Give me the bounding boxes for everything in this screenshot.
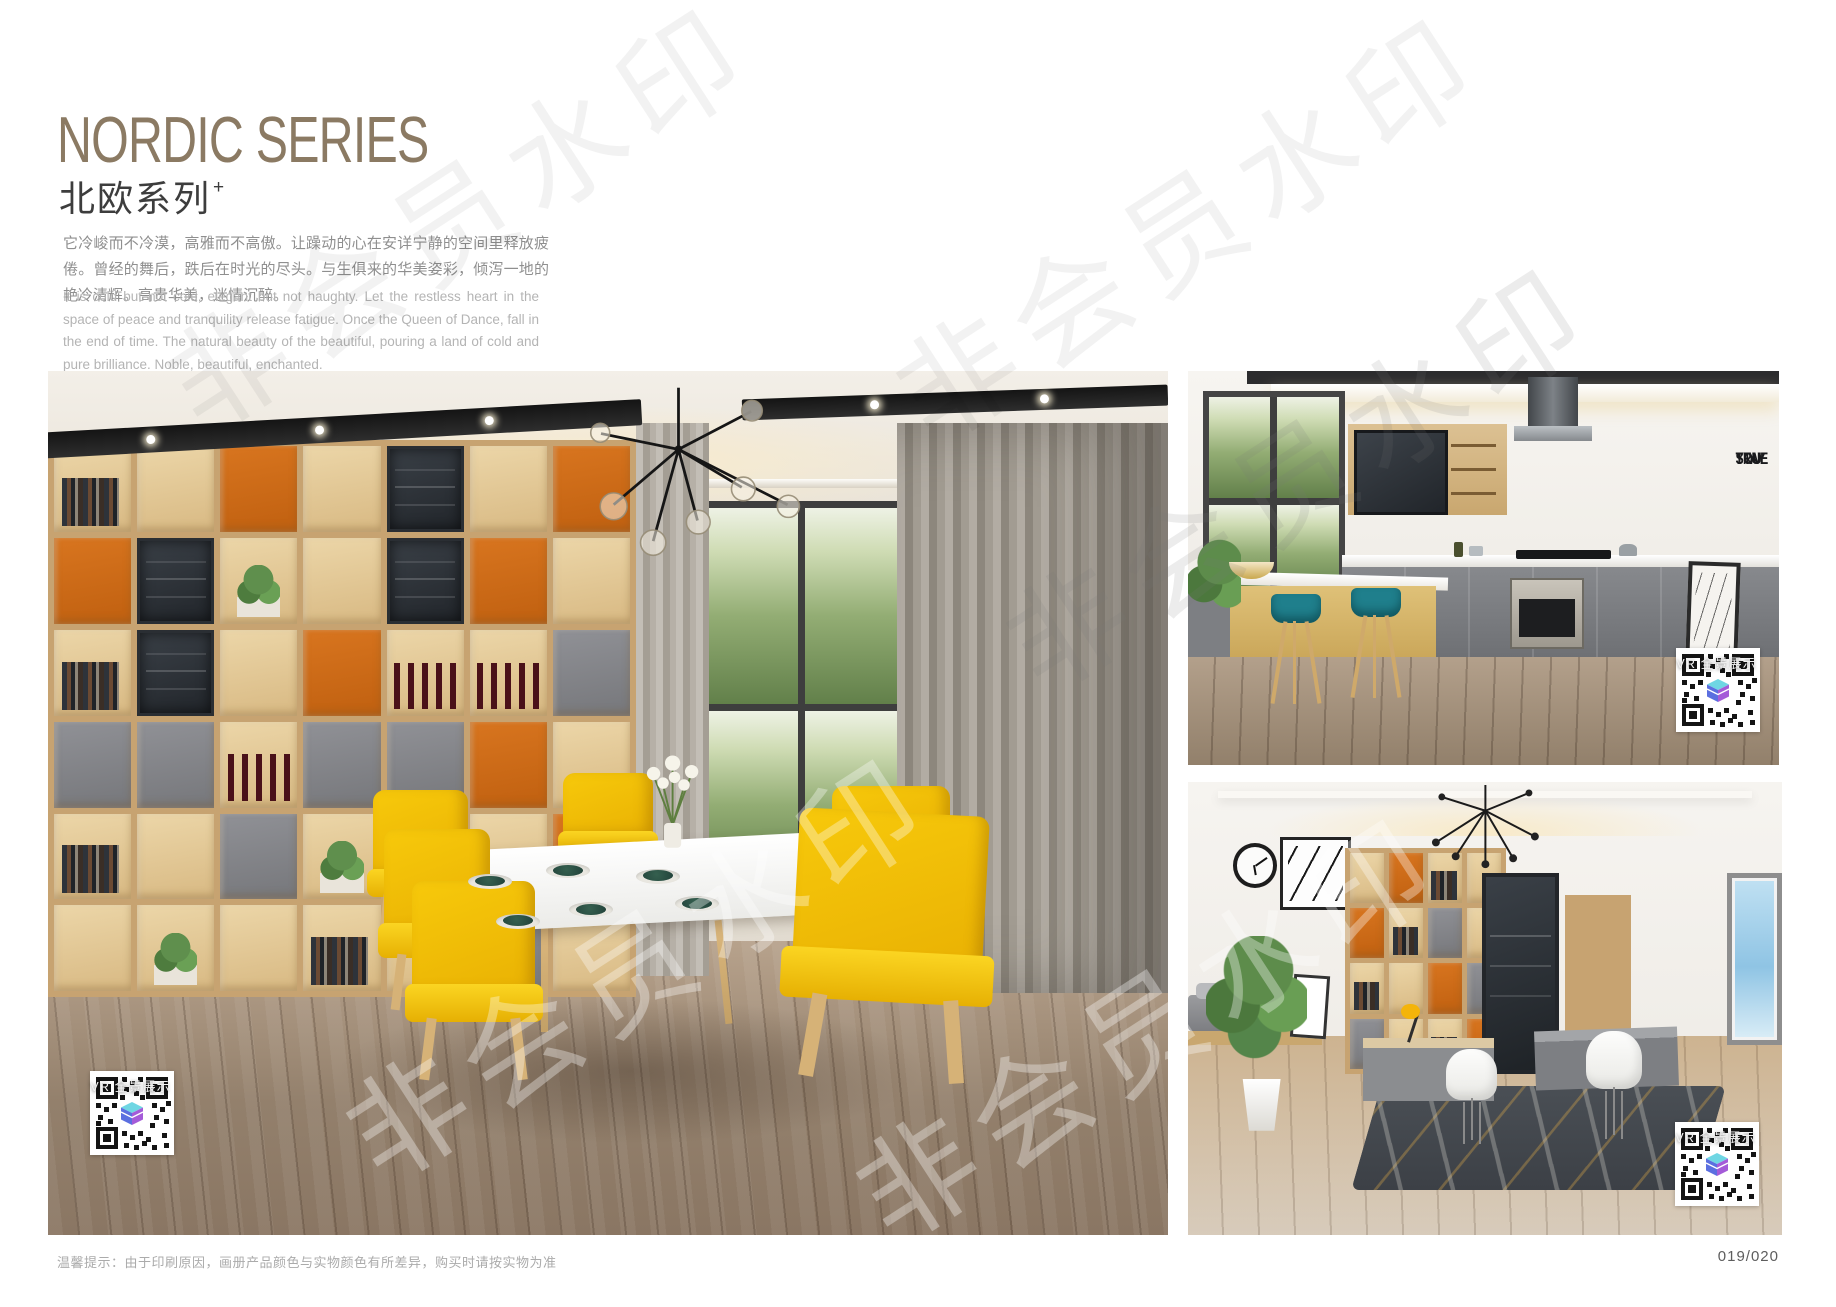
- dining-chair: [786, 807, 990, 1084]
- desk-chair: [1586, 1031, 1642, 1135]
- subtitle-plus-mark: +: [213, 177, 226, 198]
- framed-picture: [1685, 561, 1740, 661]
- wall-clock: [1233, 843, 1277, 887]
- dining-room-photo: VR 全景展示: [48, 371, 1168, 1235]
- chandelier: [552, 371, 821, 596]
- bar-stool: [1351, 588, 1401, 698]
- vr-label: VR 全景展示: [1675, 1127, 1756, 1146]
- flower-vase: [625, 734, 720, 855]
- abstract-art-frame: [1280, 837, 1351, 909]
- vr-label: VR 全景展示: [90, 1076, 171, 1095]
- desk-chair: [1446, 1049, 1496, 1140]
- upper-cabinet: [1348, 424, 1508, 515]
- bar-stool: [1271, 594, 1321, 704]
- ceiling-cove: [1271, 384, 1779, 402]
- vr-label: VR 全景展示: [1676, 653, 1757, 672]
- desk-lamp: [1399, 1004, 1429, 1045]
- footer-note: 温馨提示：由于印刷原因，画册产品颜色与实物颜色有所差异，购买时请按实物为准: [57, 1252, 557, 1271]
- dining-chair: [412, 881, 535, 1080]
- intro-paragraph-en: It is cold but not cold, elegant but not…: [63, 286, 539, 376]
- ceiling-trim: [1247, 371, 1779, 384]
- built-in-oven: [1510, 578, 1584, 649]
- study-room-photo: VR 全景展示: [1188, 782, 1782, 1235]
- cooktop: [1516, 550, 1611, 559]
- window: [1727, 873, 1782, 1045]
- plant: [1188, 536, 1241, 623]
- page-title: NORDIC SERIES: [57, 104, 428, 178]
- potted-plant: [1206, 936, 1307, 1090]
- range-hood: [1528, 377, 1578, 428]
- sputnik-chandelier: [1426, 782, 1545, 877]
- kitchen-photo: STAY TRUE STAY YOU VR 全景展示: [1188, 371, 1779, 765]
- page-number: 019/020: [1718, 1248, 1779, 1265]
- page-subtitle-cn: 北欧系列+: [59, 170, 226, 222]
